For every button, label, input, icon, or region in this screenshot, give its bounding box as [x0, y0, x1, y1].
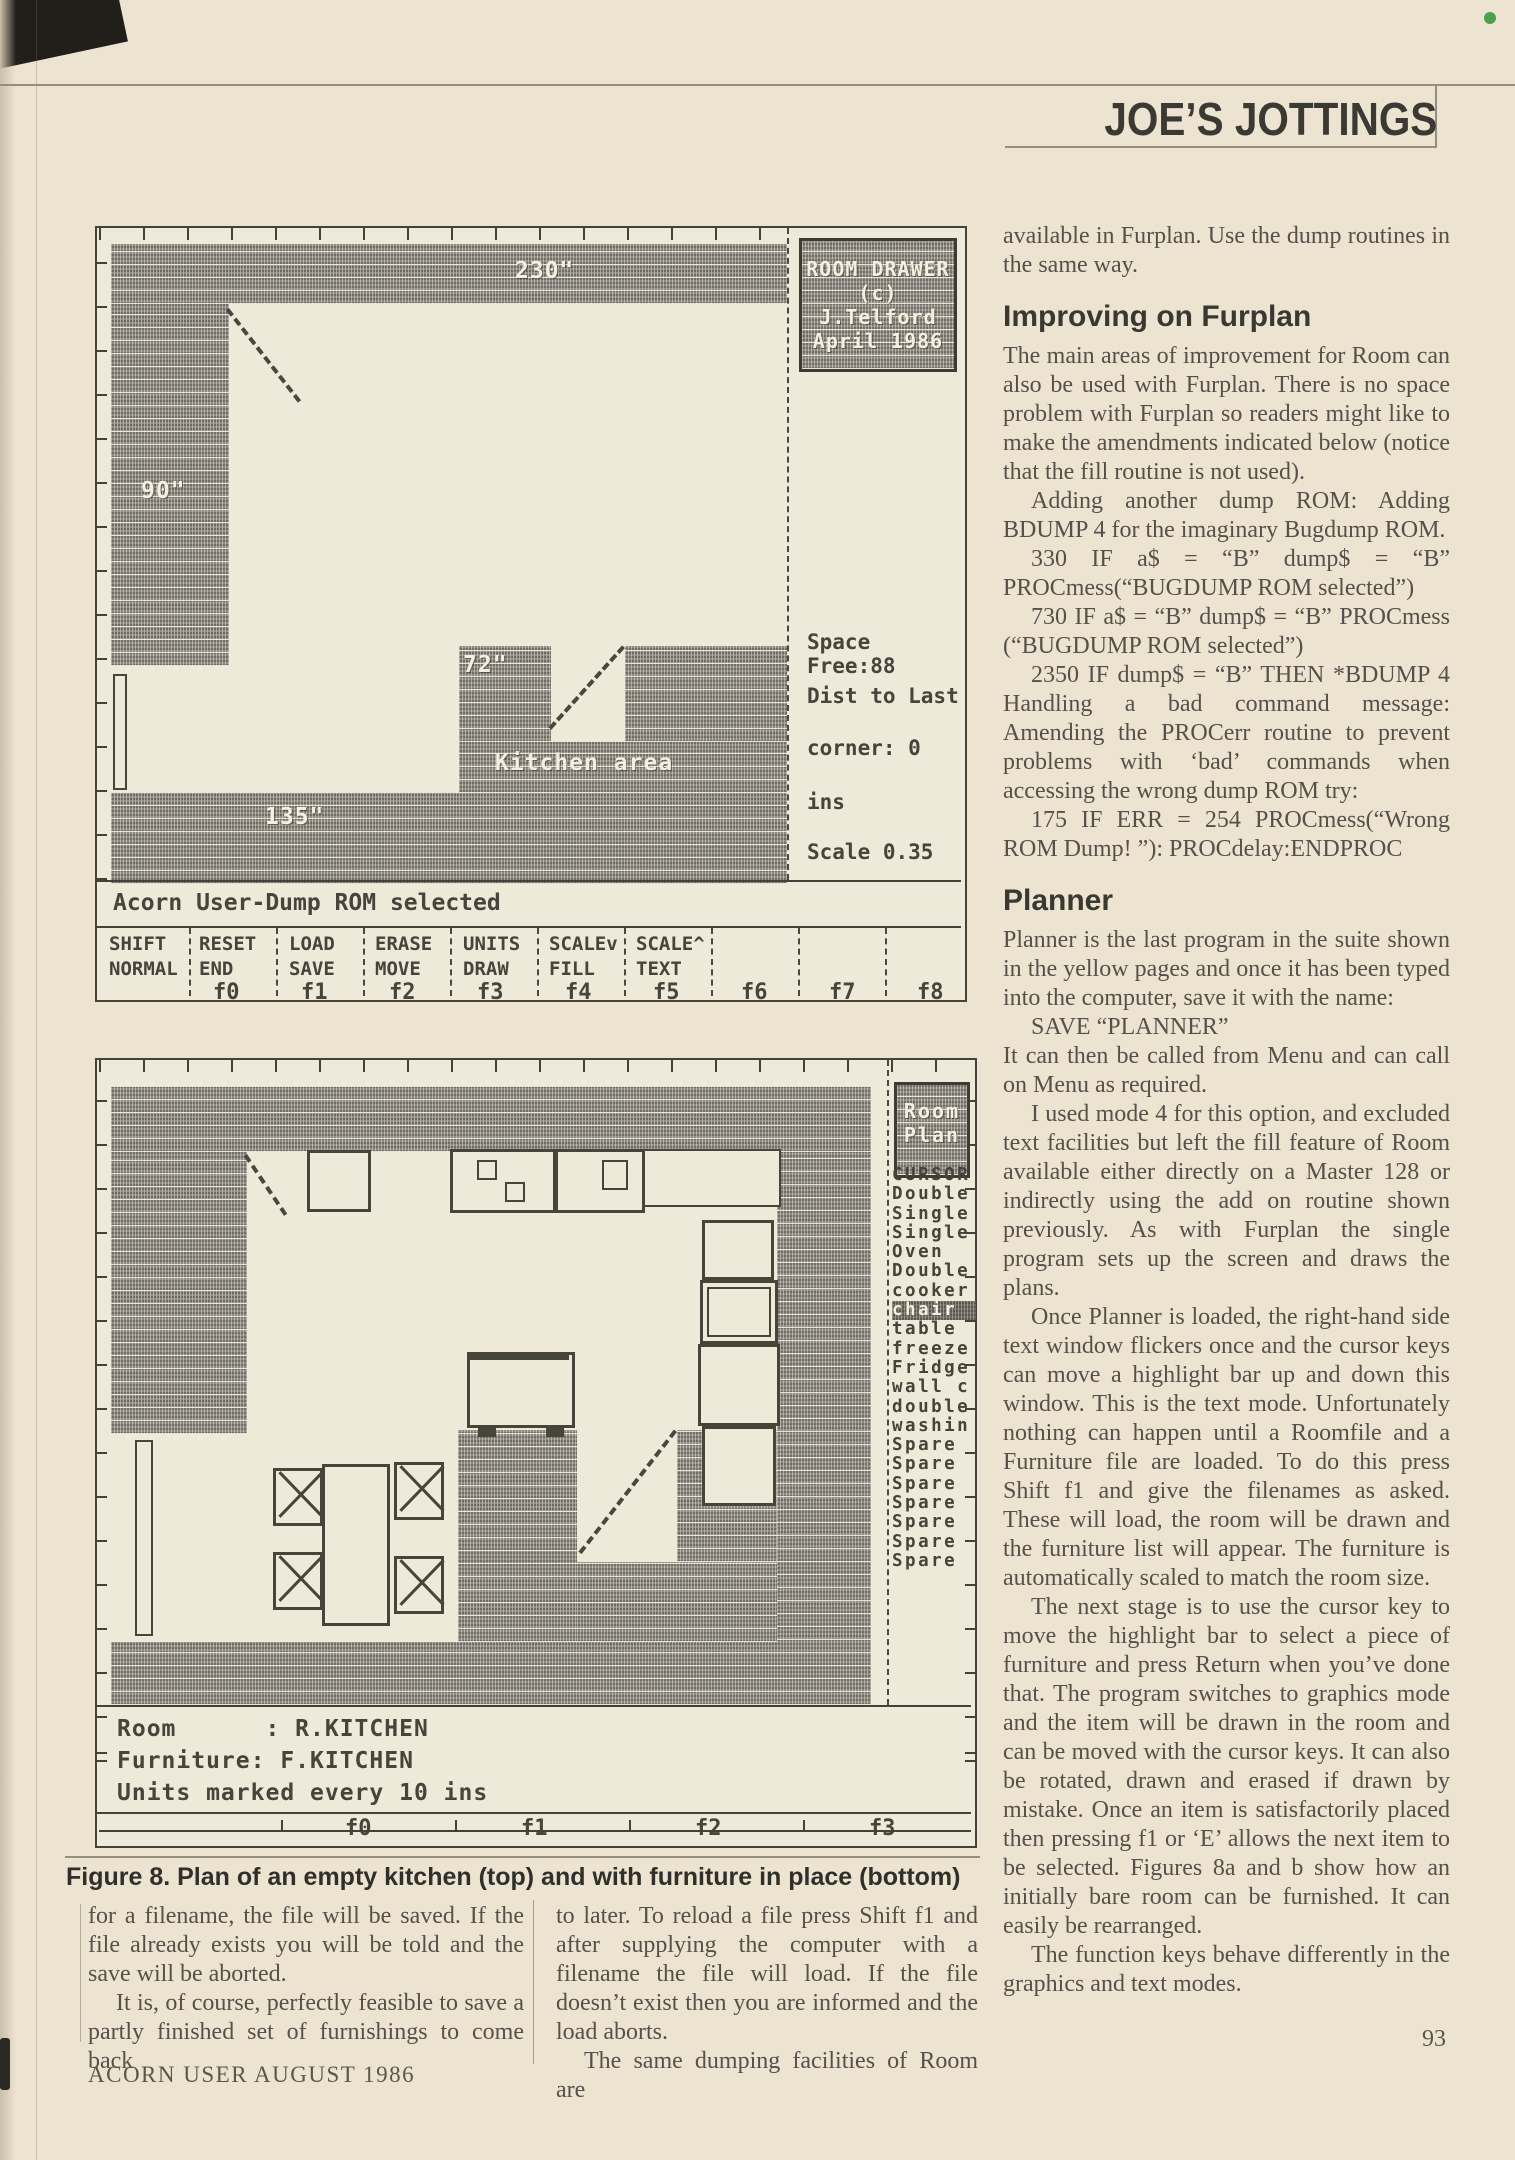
side-tick-right: [965, 1752, 977, 1754]
wall-right-mid: [625, 646, 787, 742]
paragraph: The same dumping facilities of Room are: [556, 2047, 978, 2105]
menu-item[interactable]: CURSOR: [892, 1166, 976, 1185]
paragraph: I used mode 4 for this option, and exclu…: [1003, 1100, 1450, 1303]
article-column-mid: to later. To reload a file press Shift f…: [556, 1902, 978, 2105]
kitchen-area-label: Kitchen area: [495, 750, 673, 776]
fridge-inner-line: [707, 1287, 771, 1337]
cooker-foot: [546, 1428, 564, 1437]
menu-item[interactable]: Fridge: [892, 1359, 976, 1378]
fkey-number: f0: [213, 980, 240, 1005]
section-heading: Planner: [1003, 884, 1450, 918]
planner-title-line: Plan: [897, 1123, 967, 1147]
hob-marker: [602, 1160, 628, 1190]
figure-caption: Figure 8. Plan of an empty kitchen (top)…: [66, 1863, 966, 1892]
status-box-top: [97, 1705, 971, 1707]
code-paragraph: SAVE “PLANNER”: [1003, 1013, 1450, 1042]
article-column-right: available in Furplan. Use the dump routi…: [1003, 222, 1450, 2020]
green-dot-artifact: [1484, 12, 1496, 24]
wall-under-cooker: [458, 1430, 577, 1642]
dimension-label-bottom: 135": [265, 804, 324, 830]
top-rule: [0, 84, 1515, 86]
code-paragraph: 730 IF a$ = “B” dump$ = “B” PROCmess (“B…: [1003, 603, 1450, 661]
furniture-worktop-unit: [555, 1149, 645, 1213]
rom-status-text: Acorn User-Dump ROM selected: [113, 890, 501, 916]
menu-item[interactable]: Double: [892, 1262, 976, 1281]
panel-divider: [887, 1060, 889, 1705]
fkey-label-shift-normal: SHIFTNORMAL: [109, 932, 178, 982]
furniture-menu: CURSOR Double Single Single Oven Double …: [892, 1166, 976, 1571]
menu-item[interactable]: double: [892, 1398, 976, 1417]
units-line: Units marked every 10 ins: [117, 1780, 488, 1806]
scan-corner-artifact: [0, 0, 128, 73]
paragraph: The main areas of improvement for Room c…: [1003, 342, 1450, 487]
fkey-number: f8: [917, 980, 944, 1005]
side-tick-left: [95, 1752, 107, 1754]
fkey-number: f0: [345, 1816, 372, 1841]
furniture-file-line: Furniture: F.KITCHEN: [117, 1748, 414, 1774]
menu-item[interactable]: wall c: [892, 1378, 976, 1397]
fkey-number: f6: [741, 980, 768, 1005]
wall-left: [111, 1152, 247, 1434]
menu-item[interactable]: Spare: [892, 1552, 976, 1571]
scan-edge-mark: [0, 2038, 10, 2090]
ruler-left: [97, 1062, 107, 1762]
fkey-number: f4: [565, 980, 592, 1005]
furniture-tall-unit: [698, 1344, 780, 1426]
fkey-label-load-save: LOADSAVE: [289, 932, 335, 982]
ruler-tick: [455, 1820, 457, 1830]
radiator: [135, 1440, 153, 1636]
ruler-tick: [803, 1820, 805, 1830]
paragraph: to later. To reload a file press Shift f…: [556, 1902, 978, 2047]
fkey-number: f1: [301, 980, 328, 1005]
scale-readout: Scale 0.35: [807, 840, 933, 864]
furniture-chair: [394, 1556, 444, 1614]
fkey-ruler-line: [99, 1830, 971, 1832]
program-title-line: (c) J.Telford: [802, 281, 954, 329]
menu-item[interactable]: Double: [892, 1185, 976, 1204]
fkey-number: f3: [869, 1816, 896, 1841]
program-title-line: ROOM DRAWER: [802, 257, 954, 281]
furniture-washing-machine: [702, 1426, 776, 1506]
status-divider-bottom: [97, 926, 961, 928]
paragraph: Adding another dump ROM: Adding BDUMP 4 …: [1003, 487, 1450, 545]
caption-rule: [65, 1856, 980, 1858]
fkey-separator: [885, 928, 887, 996]
fkey-number: f2: [389, 980, 416, 1005]
menu-item[interactable]: Spare: [892, 1436, 976, 1455]
program-title-line: April 1986: [802, 329, 954, 353]
window-marker: [113, 674, 127, 790]
wall-right: [777, 1152, 871, 1705]
journal-footer: ACORN USER AUGUST 1986: [88, 2062, 415, 2088]
program-title-box: ROOM DRAWER (c) J.Telford April 1986: [799, 238, 957, 372]
section-heading: Improving on Furplan: [1003, 300, 1450, 334]
furniture-chair: [273, 1468, 323, 1526]
fkey-separator: [189, 928, 191, 996]
figure-8a-screenshot: 230" 90" 72" 135" Kitchen area ROOM DRAW…: [95, 226, 967, 1002]
fkey-label-scalev-fill: SCALEvFILL: [549, 932, 618, 982]
furniture-sink-unit: [450, 1149, 556, 1213]
furniture-table: [322, 1464, 390, 1626]
page-number: 93: [1422, 2026, 1446, 2053]
sink-bowl: [477, 1160, 497, 1180]
wall-peninsula: [577, 1562, 777, 1642]
furniture-chair: [394, 1462, 444, 1520]
sink-bowl: [505, 1182, 525, 1202]
room-file-line: Room : R.KITCHEN: [117, 1716, 429, 1742]
fkey-separator: [363, 928, 365, 996]
menu-item[interactable]: cooker: [892, 1282, 976, 1301]
code-paragraph: 175 IF ERR = 254 PROCmess(“Wrong ROM Dum…: [1003, 806, 1450, 864]
menu-item[interactable]: Spare: [892, 1494, 976, 1513]
fkey-number: f3: [477, 980, 504, 1005]
menu-item[interactable]: freeze: [892, 1340, 976, 1359]
ruler-top: [99, 228, 787, 240]
menu-item[interactable]: Spare: [892, 1513, 976, 1532]
dimension-label-island: 72": [463, 652, 508, 678]
column-rule-left: [80, 1904, 81, 2042]
paragraph: The next stage is to use the cursor key …: [1003, 1593, 1450, 1941]
fkey-separator: [798, 928, 800, 996]
planner-title-line: Room: [897, 1099, 967, 1123]
menu-item[interactable]: Spare: [892, 1533, 976, 1552]
fkey-separator: [450, 928, 452, 996]
column-rule-mid: [533, 1900, 534, 2064]
ruler-left: [97, 230, 107, 880]
fkey-separator: [711, 928, 713, 996]
fkey-separator: [537, 928, 539, 996]
fkey-number: f1: [521, 1816, 548, 1841]
panel-divider: [787, 228, 789, 880]
door-swing-kitchen: [548, 645, 625, 729]
fkey-number: f7: [829, 980, 856, 1005]
dimension-label-left: 90": [141, 478, 186, 504]
menu-item[interactable]: Oven: [892, 1243, 976, 1262]
cooker-back-bar: [467, 1352, 569, 1360]
status-box-bottom: [97, 1812, 971, 1814]
dist-readout-line1: Dist to Last: [807, 684, 959, 708]
furniture-chair: [273, 1552, 323, 1610]
menu-item-highlighted[interactable]: chair: [892, 1301, 976, 1320]
cooker-foot: [478, 1428, 496, 1437]
dist-readout-units: ins: [807, 790, 845, 814]
paragraph: for a filename, the file will be saved. …: [88, 1902, 524, 1989]
furniture-wall-unit: [702, 1220, 774, 1280]
figure-8b-screenshot: Room Plan CURSOR Double Single Single Ov…: [95, 1058, 977, 1848]
ruler-tick: [281, 1820, 283, 1830]
paragraph: It can then be called from Menu and can …: [1003, 1042, 1450, 1100]
door-swing-bottom-right: [578, 1430, 677, 1555]
fkey-separator: [624, 928, 626, 996]
space-free-readout: Space Free:88: [807, 630, 965, 678]
menu-item[interactable]: washin: [892, 1417, 976, 1436]
code-paragraph: 2350 IF dump$ = “B” THEN *BDUMP 4 Handli…: [1003, 661, 1450, 806]
ruler-top: [99, 1060, 969, 1072]
paragraph: Once Planner is loaded, the right-hand s…: [1003, 1303, 1450, 1593]
fkey-label-erase-move: ERASEMOVE: [375, 932, 432, 982]
page-edge-shadow: [0, 0, 16, 2160]
ruler-tick: [629, 1820, 631, 1830]
furniture-freezer: [307, 1150, 371, 1212]
fkey-separator: [276, 928, 278, 996]
paragraph: Planner is the last program in the suite…: [1003, 926, 1450, 1013]
door-swing-top-left: [226, 308, 301, 403]
paragraph: The function keys behave differently in …: [1003, 1941, 1450, 1999]
fkey-number: f2: [695, 1816, 722, 1841]
dimension-label-top: 230": [515, 258, 574, 284]
fkey-number: f5: [653, 980, 680, 1005]
menu-item[interactable]: Single: [892, 1224, 976, 1243]
furniture-counter-run: [643, 1149, 781, 1207]
dist-readout-line2: corner: 0: [807, 736, 921, 760]
menu-item[interactable]: Single: [892, 1205, 976, 1224]
page-title: JOE’S JOTTINGS: [1104, 92, 1437, 146]
wall-bottom: [111, 1642, 871, 1705]
masthead-underline: [1005, 146, 1437, 148]
code-paragraph: 330 IF a$ = “B” dump$ = “B” PROCmess(“BU…: [1003, 545, 1450, 603]
article-column-left: for a filename, the file will be saved. …: [88, 1902, 524, 2076]
furniture-fridge: [700, 1280, 778, 1344]
magazine-page: JOE’S JOTTINGS 230" 90" 72" 135" Kitchen…: [0, 0, 1515, 2160]
page-crease: [36, 0, 37, 2160]
paragraph: available in Furplan. Use the dump routi…: [1003, 222, 1450, 280]
wall-top: [111, 1086, 871, 1152]
fkey-label-scale-text: SCALE^TEXT: [636, 932, 705, 982]
furniture-cooker: [467, 1352, 575, 1428]
door-swing-top-left: [244, 1154, 288, 1216]
wall-top: [111, 244, 787, 304]
fkey-label-units-draw: UNITSDRAW: [463, 932, 520, 982]
menu-item[interactable]: table: [892, 1320, 976, 1339]
menu-item[interactable]: Spare: [892, 1455, 976, 1474]
planner-title-box: Room Plan: [894, 1082, 970, 1178]
status-divider-top: [97, 880, 961, 882]
menu-item[interactable]: Spare: [892, 1475, 976, 1494]
fkey-label-reset-end: RESETEND: [199, 932, 256, 982]
